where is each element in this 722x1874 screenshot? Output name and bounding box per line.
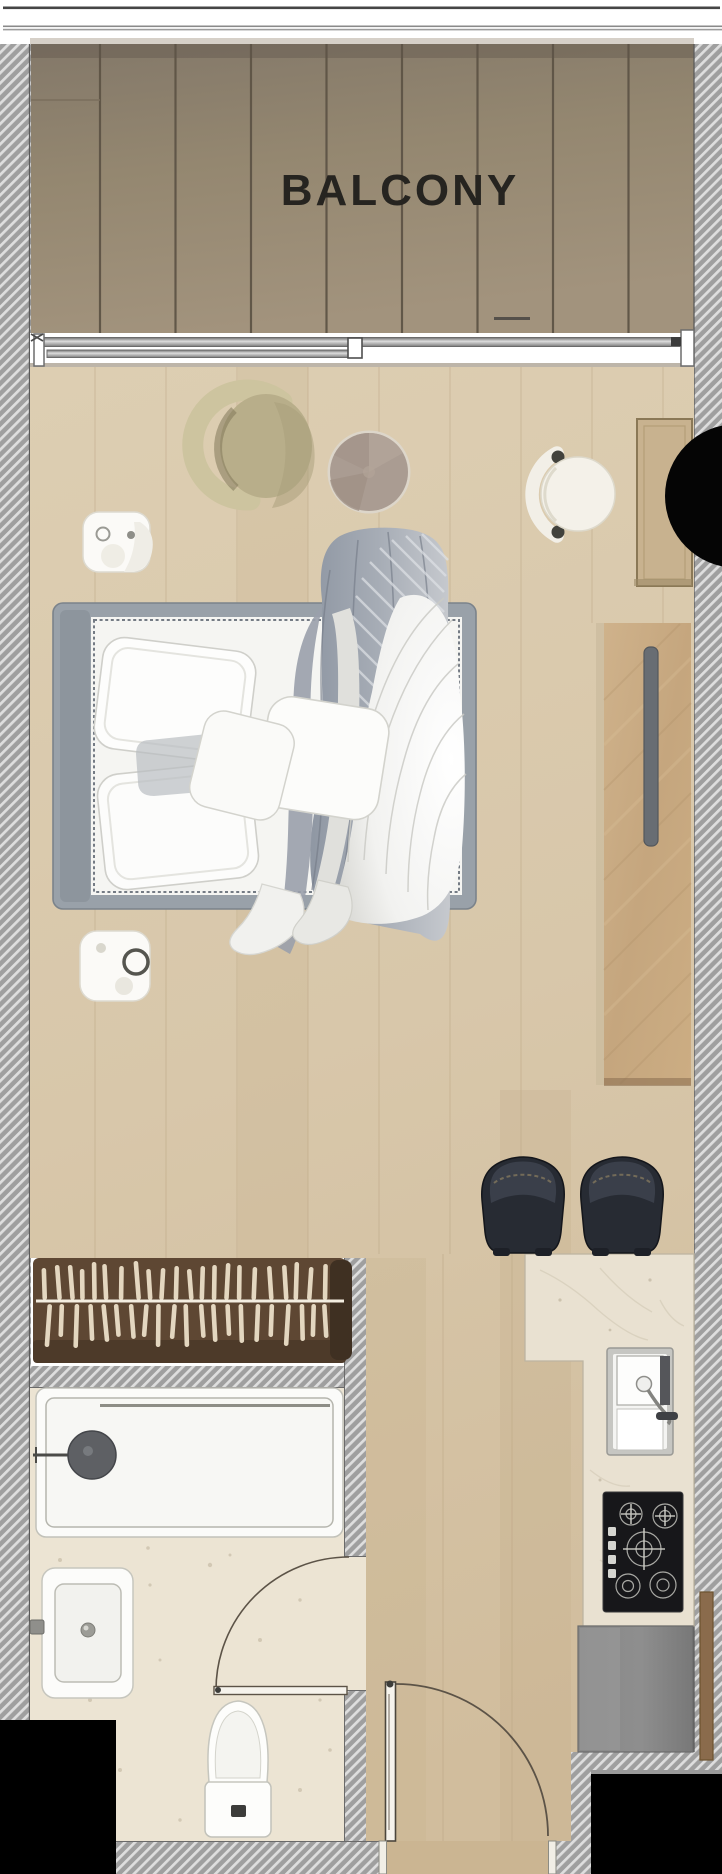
svg-text:BALCONY: BALCONY: [281, 166, 520, 215]
